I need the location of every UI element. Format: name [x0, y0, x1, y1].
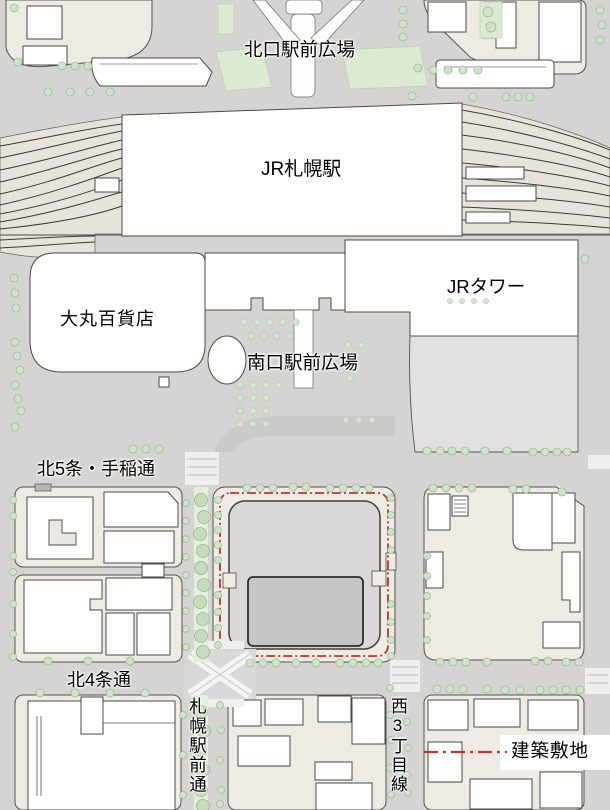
building	[528, 700, 578, 730]
building	[104, 492, 178, 527]
bus-shelter	[92, 58, 212, 86]
building	[428, 2, 466, 32]
building	[104, 531, 174, 563]
building	[543, 622, 580, 648]
building	[470, 779, 532, 809]
building	[27, 6, 62, 39]
platform	[466, 212, 510, 223]
building	[539, 2, 581, 62]
building	[428, 494, 450, 530]
plaza-lawn	[218, 4, 234, 34]
site-parcel	[213, 487, 396, 662]
building	[106, 578, 172, 610]
building	[24, 580, 102, 653]
building	[316, 783, 372, 810]
structure	[35, 484, 51, 491]
building	[513, 493, 552, 550]
small-kiosk	[159, 377, 169, 387]
tower-forecourt	[410, 336, 578, 452]
building	[474, 699, 520, 727]
building	[428, 742, 462, 782]
building-footprint	[248, 577, 363, 646]
plaza-lawn	[480, 2, 502, 38]
building	[238, 736, 290, 766]
label-kita4-street: 北4条通	[67, 671, 131, 689]
label-south-plaza: 南口駅前広場	[247, 354, 358, 373]
building	[552, 493, 575, 543]
platform	[466, 186, 536, 201]
label-ekimae-street: 札幌駅前通	[188, 697, 206, 795]
building	[452, 496, 468, 516]
label-north-plaza: 北口駅前広場	[244, 41, 355, 60]
platform	[95, 178, 119, 192]
legend-site-label: 建築敷地	[511, 742, 589, 761]
site-notch-right	[372, 571, 386, 586]
site-notch-left	[223, 573, 236, 588]
label-kita5-street: 北5条・手稲通	[37, 460, 155, 478]
building	[540, 772, 582, 808]
site-map: 北口駅前広場 JR札幌駅 大丸百貨店 JRタワー 南口駅前広場 北5条・手稲通 …	[0, 0, 610, 810]
building	[81, 697, 103, 734]
plaza-oval	[208, 336, 246, 384]
building	[315, 762, 352, 780]
building	[352, 698, 385, 744]
platform	[466, 167, 524, 179]
sky-bridge	[142, 564, 164, 577]
label-nishi3-line: 西3丁目線	[389, 697, 406, 794]
label-jr-tower: JRタワー	[447, 278, 525, 297]
building	[318, 696, 351, 722]
building	[428, 700, 468, 730]
bus-shelter	[436, 60, 554, 88]
building	[137, 613, 170, 655]
label-station: JR札幌駅	[261, 160, 341, 179]
plaza-walkway	[286, 0, 322, 14]
building	[106, 613, 134, 655]
building	[265, 699, 303, 725]
label-daimaru: 大丸百貨店	[60, 310, 155, 328]
